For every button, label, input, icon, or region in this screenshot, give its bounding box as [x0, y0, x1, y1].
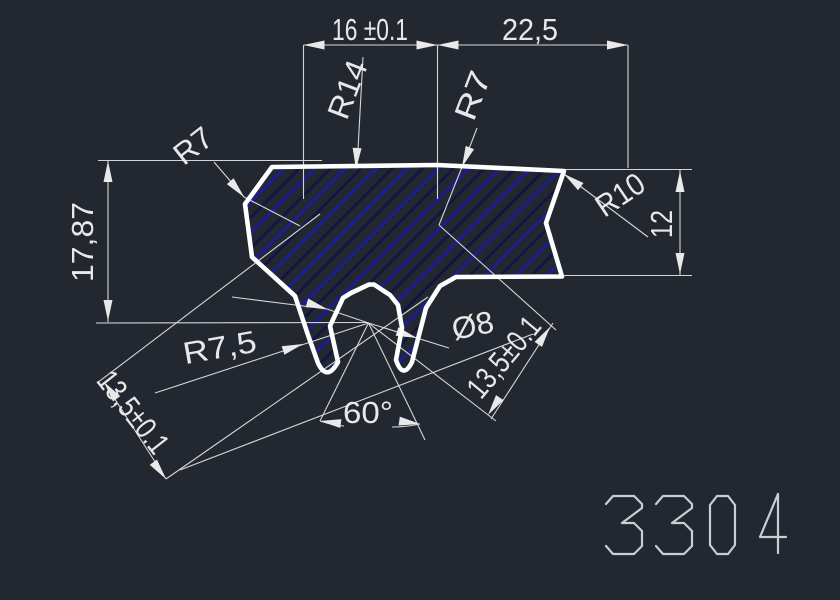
svg-text:12: 12: [644, 210, 679, 238]
svg-text:16 ±0.1: 16 ±0.1: [332, 12, 408, 47]
svg-text:17,87: 17,87: [65, 202, 100, 282]
svg-text:22,5: 22,5: [502, 12, 558, 47]
svg-text:60°: 60°: [343, 395, 393, 430]
